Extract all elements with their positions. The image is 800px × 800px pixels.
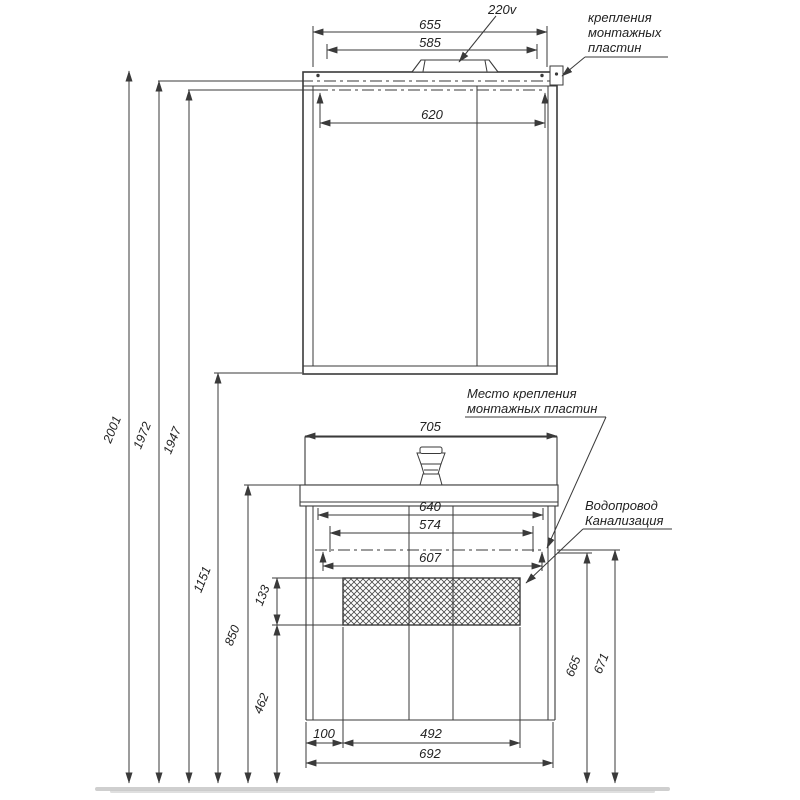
dim-492-label: 492: [420, 726, 442, 741]
mounting-dot-right-plate: [555, 72, 558, 75]
dim-1972-label: 1972: [131, 420, 154, 451]
dim-705-label: 705: [419, 419, 441, 434]
dim-665-label: 665: [563, 654, 584, 679]
dim-692-label: 692: [419, 746, 441, 761]
floor-shadow: [95, 787, 670, 793]
plumbing-service-zone: [343, 578, 520, 625]
dim-607-label: 607: [419, 550, 441, 565]
mirror-mount-callout: крепления монтажных пластин: [562, 10, 668, 76]
plumbing-dimensions: 665 671: [557, 550, 620, 783]
bathroom-furniture-installation-drawing: 655 585 620 220v крепления монтажных пла…: [0, 0, 800, 800]
dim-620-label: 620: [421, 107, 443, 122]
mirror-lamp: [412, 60, 498, 72]
mirror-mount-label-1: крепления: [588, 10, 652, 25]
dim-2001-label: 2001: [100, 414, 124, 446]
dim-585-label: 585: [419, 35, 441, 50]
vanity-mount-label-2: монтажных пластин: [467, 401, 597, 416]
dim-671-label: 671: [591, 651, 612, 676]
voltage-callout: 220v: [459, 0, 540, 62]
drawing-svg: 655 585 620 220v крепления монтажных пла…: [0, 0, 800, 800]
faucet: [417, 447, 445, 485]
dim-1947-label: 1947: [161, 424, 185, 456]
mirror-mount-label-3: пластин: [588, 40, 641, 55]
dim-850-label: 850: [222, 623, 243, 648]
mounting-dot-left: [316, 74, 319, 77]
dim-100-label: 100: [313, 726, 335, 741]
dim-640-label: 640: [419, 499, 441, 514]
dim-462-label: 462: [251, 691, 272, 716]
dim-1151-label: 1151: [191, 564, 214, 594]
mirror-mount-label-2: монтажных: [588, 25, 662, 40]
dim-655-label: 655: [419, 17, 441, 32]
mounting-dot-right: [540, 74, 543, 77]
vanity-mount-label-1: Место крепления: [467, 386, 577, 401]
plumbing-label-2: Канализация: [585, 513, 663, 528]
plumbing-label-1: Водопровод: [585, 498, 658, 513]
dim-133-label: 133: [252, 583, 273, 608]
dim-574-label: 574: [419, 517, 441, 532]
